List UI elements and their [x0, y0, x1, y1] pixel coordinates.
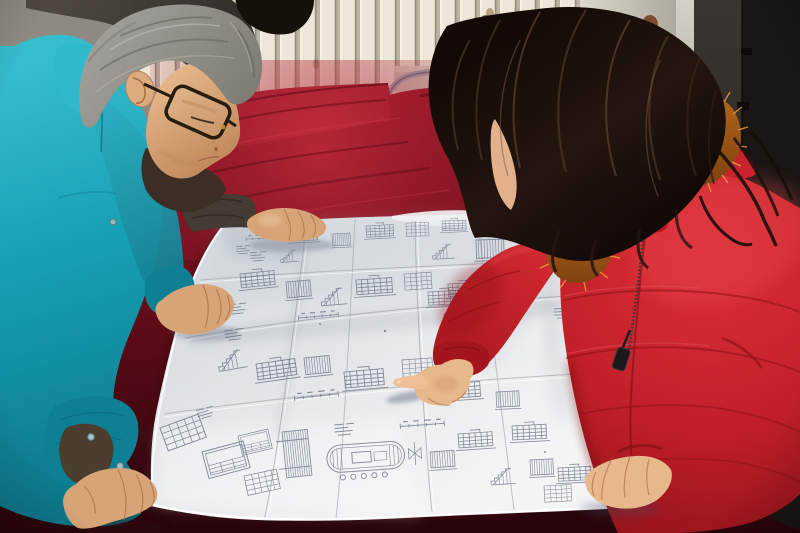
vignette [0, 0, 800, 533]
photo-scene [0, 0, 800, 533]
